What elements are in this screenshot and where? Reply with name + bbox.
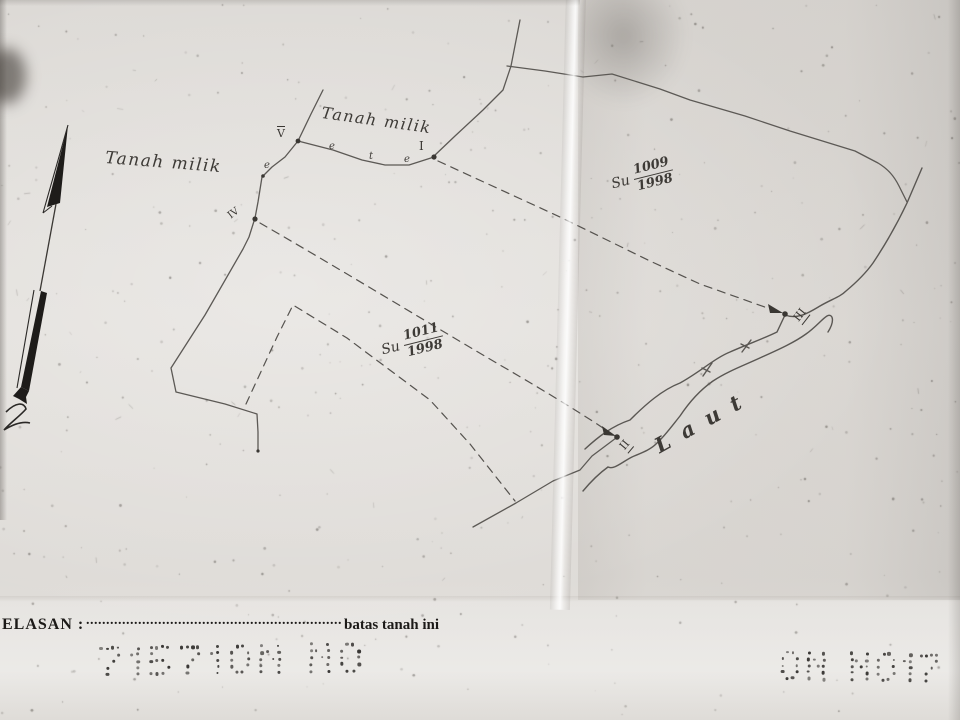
parcel-prefix: Su	[380, 338, 402, 358]
line-end-dot	[256, 449, 259, 452]
boundary-south	[473, 438, 616, 527]
point-label-v: V	[277, 126, 285, 140]
dashed-arrowhead-iii	[768, 304, 783, 313]
point-dot-i	[431, 154, 436, 159]
point-dot-v	[296, 139, 301, 144]
north-arrow-icon	[4, 125, 68, 430]
fence-dot	[261, 174, 265, 178]
photo-edge-right	[948, 0, 960, 720]
footer-label: ELASAN :	[2, 616, 84, 634]
boundary-fence	[298, 141, 434, 165]
fence-mark: t	[369, 151, 373, 162]
map-linework	[0, 0, 960, 720]
dashed-boundary-i-iii	[438, 161, 776, 311]
footer-suffix: batas tanah ini	[344, 617, 439, 634]
fence-mark: e	[264, 160, 270, 171]
boundary-northwest	[434, 20, 520, 156]
point-label-i: I	[419, 139, 424, 153]
photo-edge-top	[0, 0, 580, 6]
footer-dotted-line: ........................................…	[86, 613, 342, 633]
fence-mark: e	[404, 154, 410, 165]
point-dot-iii	[782, 311, 788, 317]
boundary-west	[171, 141, 298, 450]
fence-mark: e	[329, 141, 335, 152]
scanned-land-survey-map: Tanah milik Tanah milik Laut Su 1009 199…	[0, 0, 960, 720]
point-dot-ii	[614, 434, 620, 440]
boundary-spur	[298, 90, 323, 141]
parcel-prefix: Su	[610, 172, 632, 192]
point-dot-iv	[252, 216, 257, 221]
